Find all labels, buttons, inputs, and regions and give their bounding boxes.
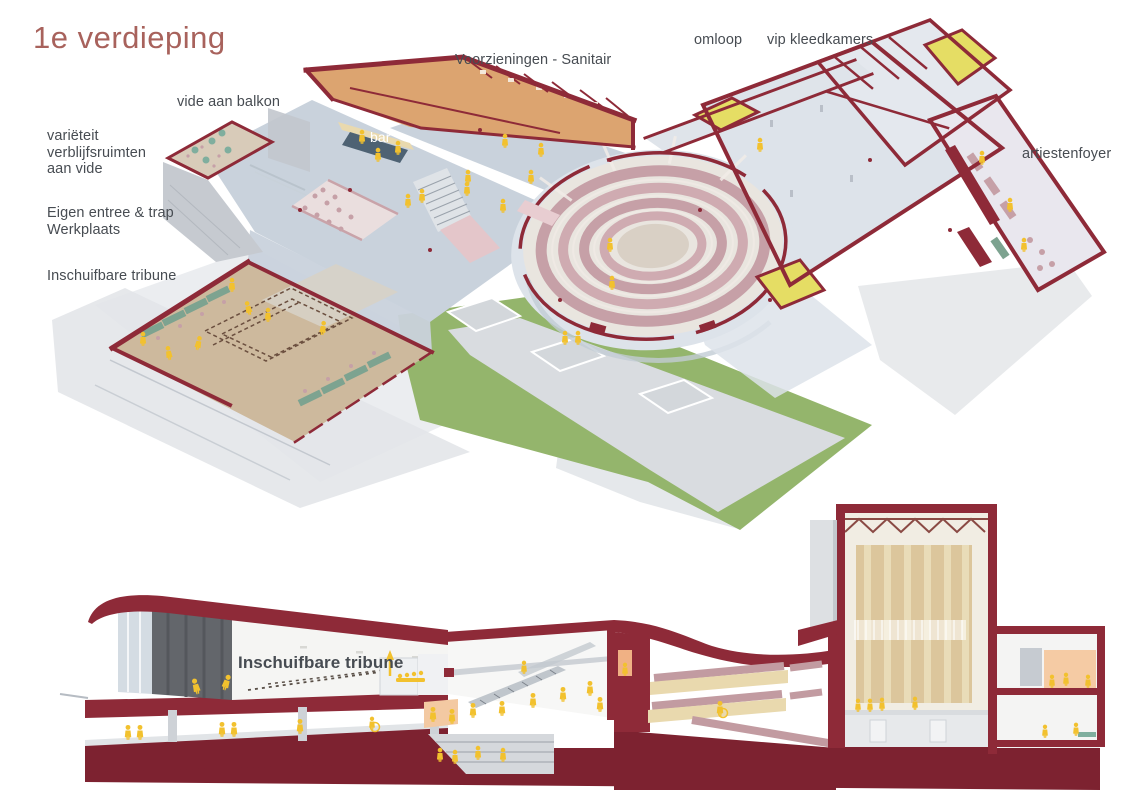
left-hall xyxy=(88,595,448,700)
fly-tower xyxy=(798,504,997,765)
page-title: 1e verdieping xyxy=(33,20,226,56)
stage-floor xyxy=(845,710,988,715)
architectural-drawing xyxy=(0,0,1131,800)
label-vip-kleedkamers: vip kleedkamers xyxy=(767,32,873,49)
label-eigen-entree: Eigen entree & trap Werkplaats xyxy=(47,205,174,238)
label-artiestenfoyer: artiestenfoyer xyxy=(1022,146,1111,163)
label-varieteit: variëteit verblijfsruimten aan vide xyxy=(47,128,146,178)
label-inschuifbare-tribune-plan: Inschuifbare tribune xyxy=(47,268,176,285)
fly-gallery xyxy=(854,620,966,640)
label-line: verblijfsruimten xyxy=(47,145,146,162)
label-inschuifbare-tribune-section: Inschuifbare tribune xyxy=(238,655,403,672)
label-line: aan vide xyxy=(47,161,146,178)
label-vide-aan-balkon: vide aan balkon xyxy=(177,94,280,111)
label-bar: bar xyxy=(370,129,391,146)
label-line: variëteit xyxy=(47,128,146,145)
page: 1e verdieping vide aan balkon variëteit … xyxy=(0,0,1131,800)
label-line: Werkplaats xyxy=(47,222,174,239)
label-omloop: omloop xyxy=(694,32,742,49)
label-line: Eigen entree & trap xyxy=(47,205,174,222)
cross-section xyxy=(60,504,1105,790)
label-voorzieningen-sanitair: Voorzieningen - Sanitair xyxy=(455,52,611,69)
